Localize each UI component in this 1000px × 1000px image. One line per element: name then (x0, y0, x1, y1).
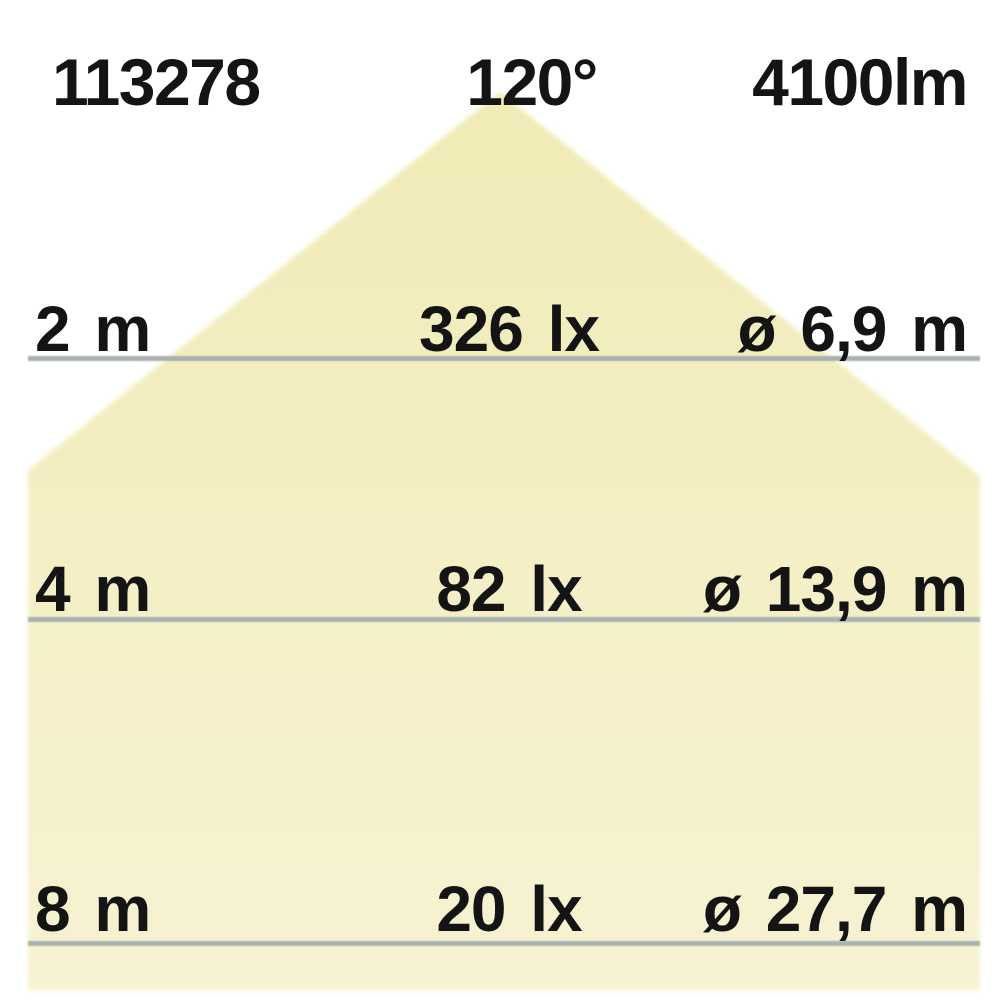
cone-graphic-layer (0, 0, 1000, 1000)
distance-row-4m: 4 m 82 lx ø 13,9 m (35, 557, 967, 621)
distance-label: 2 m (35, 297, 150, 361)
distance-label: 8 m (35, 877, 150, 941)
diameter-label: ø 6,9 m (737, 297, 967, 361)
diameter-label: ø 13,9 m (703, 557, 967, 621)
illuminance-label: 20 lx (436, 877, 581, 941)
illuminance-label: 326 lx (419, 297, 599, 361)
header-row: 113278 120° 4100lm (52, 49, 967, 115)
light-distribution-diagram: 113278 120° 4100lm 2 m 326 lx ø 6,9 m 4 … (0, 0, 1000, 1000)
article-number: 113278 (52, 49, 260, 115)
beam-angle: 120° (466, 49, 597, 115)
distance-row-8m: 8 m 20 lx ø 27,7 m (35, 877, 967, 941)
light-cone (28, 92, 980, 991)
distance-row-2m: 2 m 326 lx ø 6,9 m (35, 297, 967, 361)
illuminance-label: 82 lx (436, 557, 581, 621)
diameter-label: ø 27,7 m (703, 877, 967, 941)
distance-label: 4 m (35, 557, 150, 621)
luminous-flux: 4100lm (752, 49, 967, 115)
